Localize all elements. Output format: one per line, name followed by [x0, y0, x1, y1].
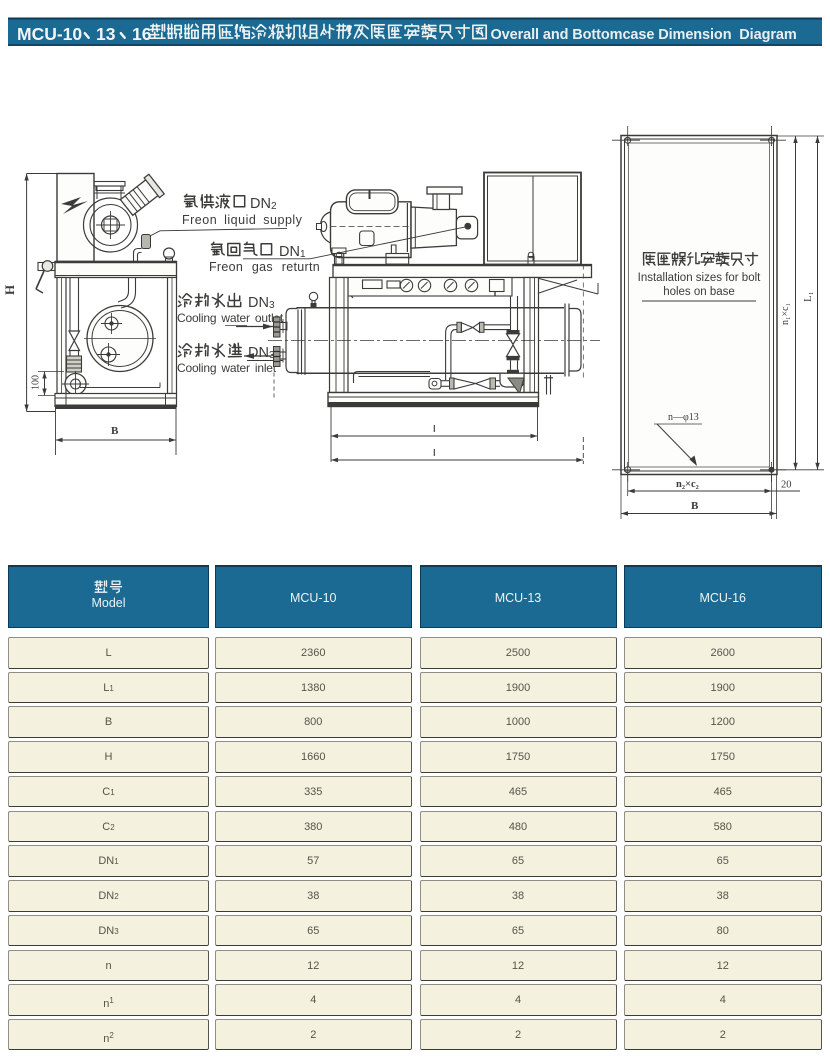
svg-text:DN: DN — [279, 244, 300, 260]
svg-text:Overall and Bottomcase Dimensi: Overall and Bottomcase Dimension Diagram — [491, 27, 797, 43]
svg-text:B: B — [691, 500, 699, 512]
svg-text:MCU-10: MCU-10 — [17, 24, 82, 44]
svg-text:holes on base: holes on base — [663, 286, 735, 298]
svg-text:n₂×c₂: n₂×c₂ — [676, 479, 699, 490]
svg-text:Freon gas returtn: Freon gas returtn — [209, 260, 320, 274]
svg-text:Cooling water outlet: Cooling water outlet — [177, 311, 284, 325]
svg-text:Installation sizes for bolt: Installation sizes for bolt — [638, 272, 762, 284]
svg-text:L₁: L₁ — [802, 291, 814, 302]
svg-text:Cooling water inlet: Cooling water inlet — [177, 361, 277, 375]
svg-text:20: 20 — [781, 480, 792, 491]
svg-text:16: 16 — [132, 24, 152, 44]
svg-text:H: H — [2, 285, 17, 295]
svg-text:n—φ13: n—φ13 — [668, 412, 699, 423]
svg-text:DN: DN — [250, 196, 271, 212]
svg-text:2: 2 — [271, 201, 277, 212]
svg-text:n₁×c₁: n₁×c₁ — [780, 303, 791, 325]
svg-text:DN: DN — [248, 345, 269, 361]
svg-text:B: B — [111, 425, 119, 437]
svg-text:100: 100 — [31, 375, 42, 390]
svg-text:DN: DN — [248, 295, 269, 311]
svg-text:3: 3 — [269, 300, 275, 311]
svg-text:13: 13 — [96, 24, 116, 44]
svg-text:Freon liquid supply: Freon liquid supply — [182, 213, 303, 227]
